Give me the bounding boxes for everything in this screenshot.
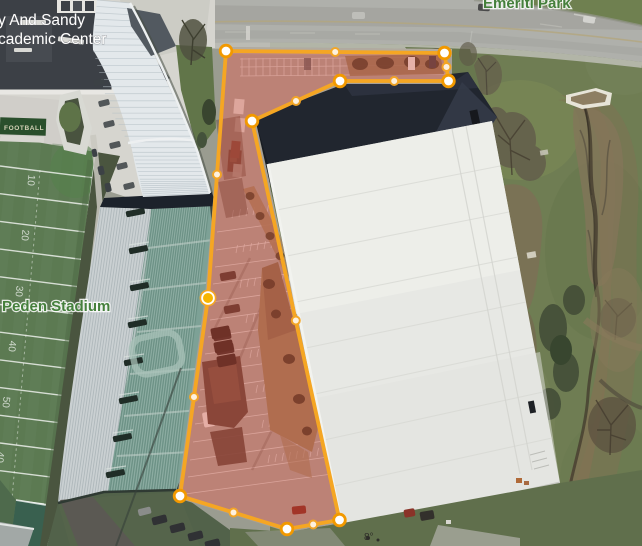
svg-text:50: 50 [0,396,11,408]
svg-text:cademic Center: cademic Center [0,31,107,48]
svg-text:8°: 8° [364,532,374,543]
svg-text:Peden Stadium: Peden Stadium [2,298,110,315]
svg-text:40: 40 [0,451,5,463]
svg-text:10: 10 [24,174,36,186]
svg-text:Emeriti Park: Emeriti Park [483,0,571,12]
svg-text:20: 20 [18,229,30,241]
svg-text:40: 40 [5,340,17,352]
svg-text:30: 30 [12,285,24,297]
svg-text:y And Sandy: y And Sandy [0,12,85,29]
svg-text:FOOTBALL: FOOTBALL [4,125,44,132]
